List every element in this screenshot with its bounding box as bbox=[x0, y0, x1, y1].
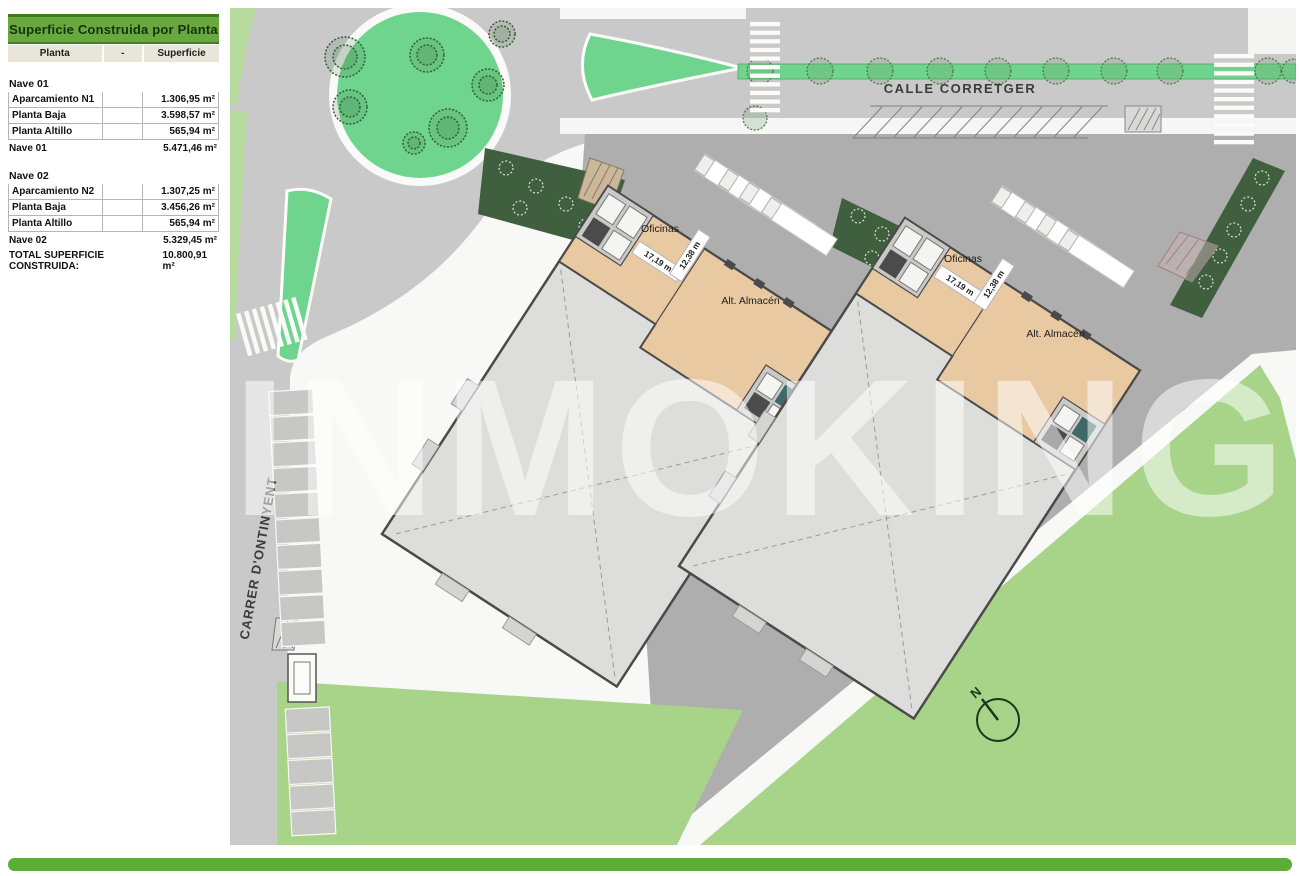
nave02-office-label: Oficinas bbox=[918, 253, 1008, 265]
table-column-headers: Planta - Superficie bbox=[8, 45, 219, 62]
subtotal-label: Nave 01 bbox=[9, 143, 47, 154]
subtotal-value: 5.329,45 m² bbox=[163, 235, 217, 246]
row-label: Planta Baja bbox=[8, 108, 103, 124]
subtotal-row: Nave 01 5.471,46 m² bbox=[8, 140, 219, 154]
row-mid bbox=[103, 124, 142, 140]
kiosk-outline bbox=[288, 654, 316, 702]
row-label: Aparcamiento N2 bbox=[8, 184, 103, 200]
subtotal-row: Nave 02 5.329,45 m² bbox=[8, 232, 219, 246]
row-value: 1.306,95 m² bbox=[142, 92, 219, 108]
table-row: Aparcamiento N1 1.306,95 m² bbox=[8, 92, 219, 108]
table-title: Superficie Construida por Planta bbox=[8, 14, 219, 44]
row-label: Planta Baja bbox=[8, 200, 103, 216]
row-label: Planta Altillo bbox=[8, 216, 103, 232]
sidewalk-strip bbox=[560, 118, 1296, 134]
section-nave-02: Nave 02 Aparcamiento N2 1.307,25 m² Plan… bbox=[8, 169, 219, 272]
hatched-pad bbox=[1125, 106, 1161, 132]
nave02-warehouse-label: Alt. Almacén bbox=[1003, 328, 1108, 340]
sidewalk-corner bbox=[1248, 8, 1296, 54]
total-label: TOTAL SUPERFICIE CONSTRUIDA: bbox=[9, 250, 163, 272]
site-plan-drawing bbox=[230, 8, 1296, 845]
table-row: Planta Altillo 565,94 m² bbox=[8, 124, 219, 140]
street-label-calle-corretger: CALLE CORRETGER bbox=[790, 81, 1130, 96]
row-mid bbox=[103, 108, 142, 124]
row-label: Aparcamiento N1 bbox=[8, 92, 103, 108]
sidewalk-top bbox=[560, 8, 746, 19]
total-row: TOTAL SUPERFICIE CONSTRUIDA: 10.800,91 m… bbox=[8, 246, 219, 272]
row-label: Planta Altillo bbox=[8, 124, 103, 140]
footer-accent-bar bbox=[8, 858, 1292, 871]
site-plan: CALLE CORRETGER CARRER D'ONTINYENT Ofici… bbox=[230, 8, 1296, 845]
subtotal-label: Nave 02 bbox=[9, 235, 47, 246]
col-header-dash: - bbox=[104, 45, 145, 62]
row-mid bbox=[103, 216, 142, 232]
col-header-planta: Planta bbox=[8, 45, 104, 62]
section-nave-01: Nave 01 Aparcamiento N1 1.306,95 m² Plan… bbox=[8, 77, 219, 154]
table-row: Planta Baja 3.598,57 m² bbox=[8, 108, 219, 124]
section-title: Nave 01 bbox=[8, 77, 219, 92]
table-row: Planta Baja 3.456,26 m² bbox=[8, 200, 219, 216]
col-header-superficie: Superficie bbox=[144, 45, 219, 62]
nave01-office-label: Oficinas bbox=[615, 223, 705, 235]
subtotal-value: 5.471,46 m² bbox=[163, 143, 217, 154]
row-mid bbox=[103, 200, 142, 216]
section-title: Nave 02 bbox=[8, 169, 219, 184]
row-mid bbox=[103, 92, 142, 108]
surface-table-panel: Superficie Construida por Planta Planta … bbox=[8, 14, 219, 272]
total-value: 10.800,91 m² bbox=[163, 250, 217, 272]
nave01-warehouse-label: Alt. Almacén bbox=[698, 295, 803, 307]
table-row: Planta Altillo 565,94 m² bbox=[8, 216, 219, 232]
row-value: 565,94 m² bbox=[142, 216, 219, 232]
row-mid bbox=[103, 184, 142, 200]
row-value: 3.456,26 m² bbox=[142, 200, 219, 216]
row-value: 1.307,25 m² bbox=[142, 184, 219, 200]
row-value: 3.598,57 m² bbox=[142, 108, 219, 124]
table-row: Aparcamiento N2 1.307,25 m² bbox=[8, 184, 219, 200]
row-value: 565,94 m² bbox=[142, 124, 219, 140]
